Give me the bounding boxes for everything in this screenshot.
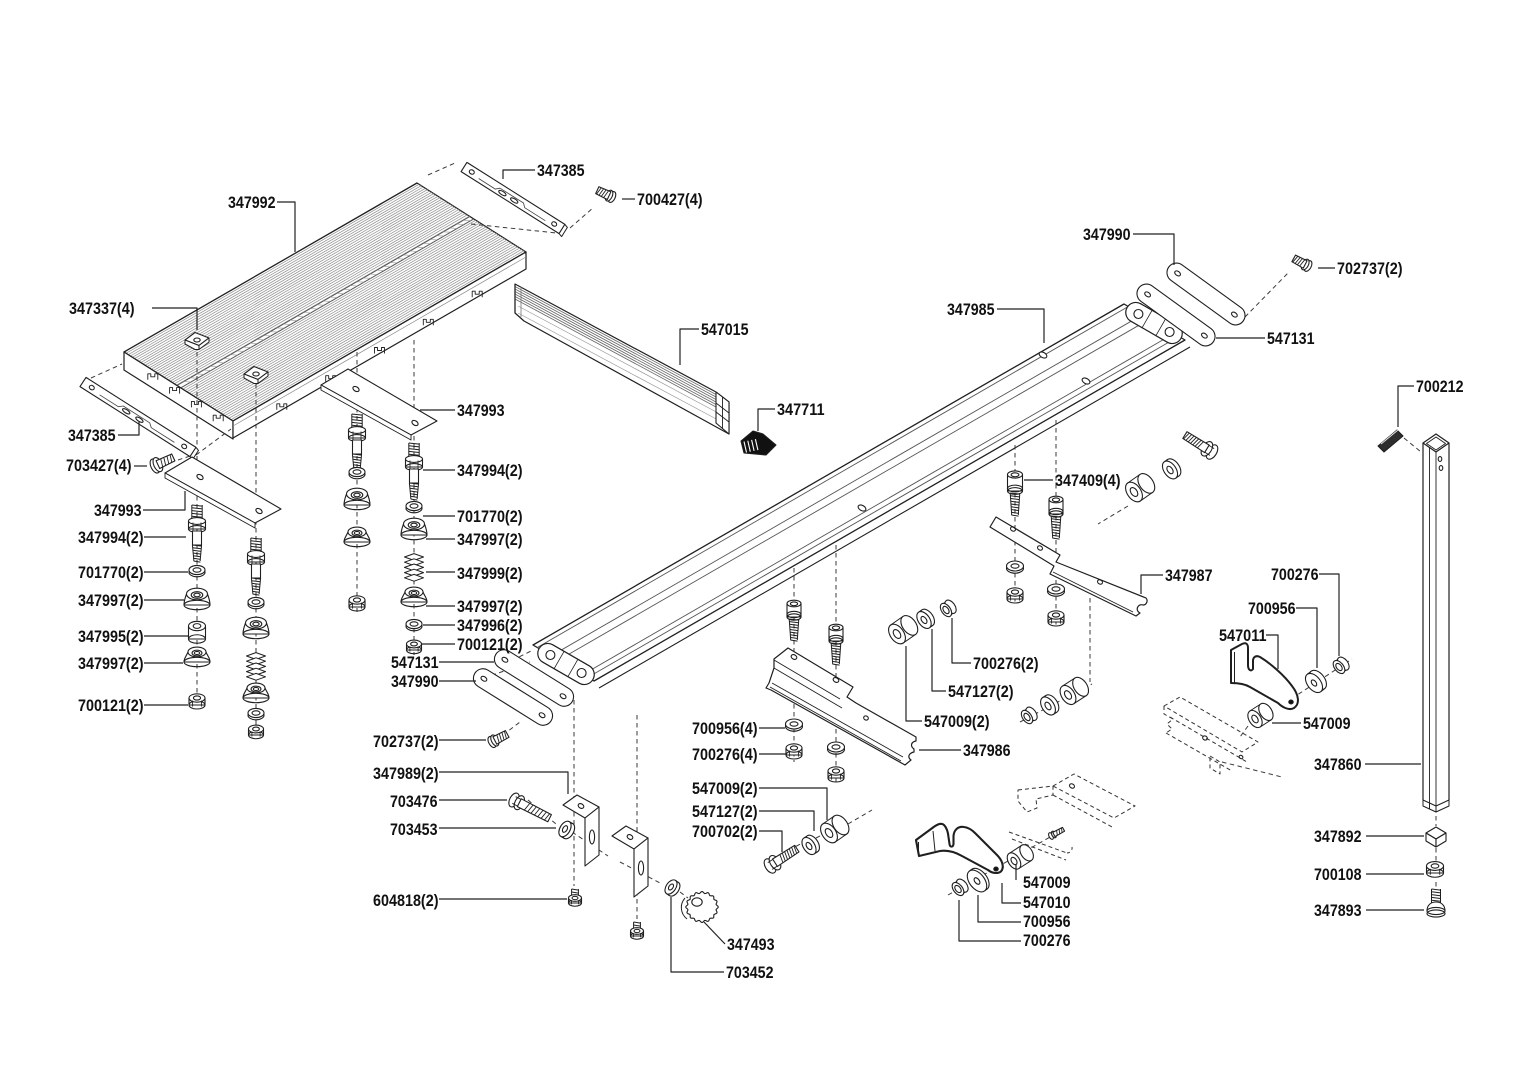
svg-text:347409(4): 347409(4) [1055,472,1121,490]
svg-text:701770(2): 701770(2) [78,564,144,582]
svg-text:347997(2): 347997(2) [78,592,144,610]
svg-text:700276(2): 700276(2) [973,655,1039,673]
svg-text:347990: 347990 [391,673,439,691]
svg-text:347997(2): 347997(2) [457,531,523,549]
svg-text:347385: 347385 [68,427,116,445]
svg-text:347993: 347993 [94,502,142,520]
svg-text:347996(2): 347996(2) [457,617,523,635]
svg-text:347892: 347892 [1314,828,1362,846]
svg-text:347995(2): 347995(2) [78,628,144,646]
svg-text:547009: 547009 [1303,715,1351,733]
svg-text:347860: 347860 [1314,756,1362,774]
svg-text:547127(2): 547127(2) [948,683,1014,701]
svg-text:547010: 547010 [1023,894,1071,912]
svg-text:700427(4): 700427(4) [637,191,703,209]
svg-text:347989(2): 347989(2) [373,765,439,783]
svg-text:700276: 700276 [1023,932,1071,950]
svg-text:547011: 547011 [1219,627,1267,645]
svg-text:700121(2): 700121(2) [78,697,144,715]
svg-text:703452: 703452 [726,964,774,982]
svg-text:700276: 700276 [1271,566,1319,584]
svg-text:347990: 347990 [1083,226,1131,244]
svg-text:701770(2): 701770(2) [457,508,523,526]
svg-text:347493: 347493 [727,936,775,954]
svg-text:700956: 700956 [1248,600,1296,618]
svg-text:700121(2): 700121(2) [457,636,523,654]
svg-text:703476: 703476 [390,793,438,811]
svg-text:703427(4): 703427(4) [66,457,132,475]
svg-text:547015: 547015 [701,321,749,339]
svg-text:347994(2): 347994(2) [78,529,144,547]
svg-text:547009: 547009 [1023,874,1071,892]
svg-text:347893: 347893 [1314,902,1362,920]
svg-text:700212: 700212 [1416,378,1464,396]
svg-text:547131: 547131 [391,654,439,672]
svg-text:547009(2): 547009(2) [692,780,758,798]
svg-text:347994(2): 347994(2) [457,462,523,480]
svg-text:604818(2): 604818(2) [373,892,439,910]
svg-text:700702(2): 700702(2) [692,823,758,841]
svg-text:700108: 700108 [1314,866,1362,884]
svg-text:347987: 347987 [1165,567,1213,585]
svg-text:700956(4): 700956(4) [692,720,758,738]
svg-text:703453: 703453 [390,821,438,839]
svg-text:702737(2): 702737(2) [1337,260,1403,278]
svg-text:347999(2): 347999(2) [457,565,523,583]
svg-text:702737(2): 702737(2) [373,733,439,751]
svg-text:347997(2): 347997(2) [457,598,523,616]
svg-text:700276(4): 700276(4) [692,746,758,764]
svg-text:347385: 347385 [537,162,585,180]
svg-text:547131: 547131 [1267,330,1315,348]
svg-text:547127(2): 547127(2) [692,803,758,821]
svg-text:700956: 700956 [1023,913,1071,931]
svg-text:347986: 347986 [963,742,1011,760]
svg-text:347985: 347985 [947,301,995,319]
svg-text:347992: 347992 [228,194,276,212]
svg-text:347337(4): 347337(4) [69,300,135,318]
svg-text:347997(2): 347997(2) [78,655,144,673]
svg-text:547009(2): 547009(2) [924,713,990,731]
svg-text:347711: 347711 [777,401,825,419]
svg-text:347993: 347993 [457,402,505,420]
